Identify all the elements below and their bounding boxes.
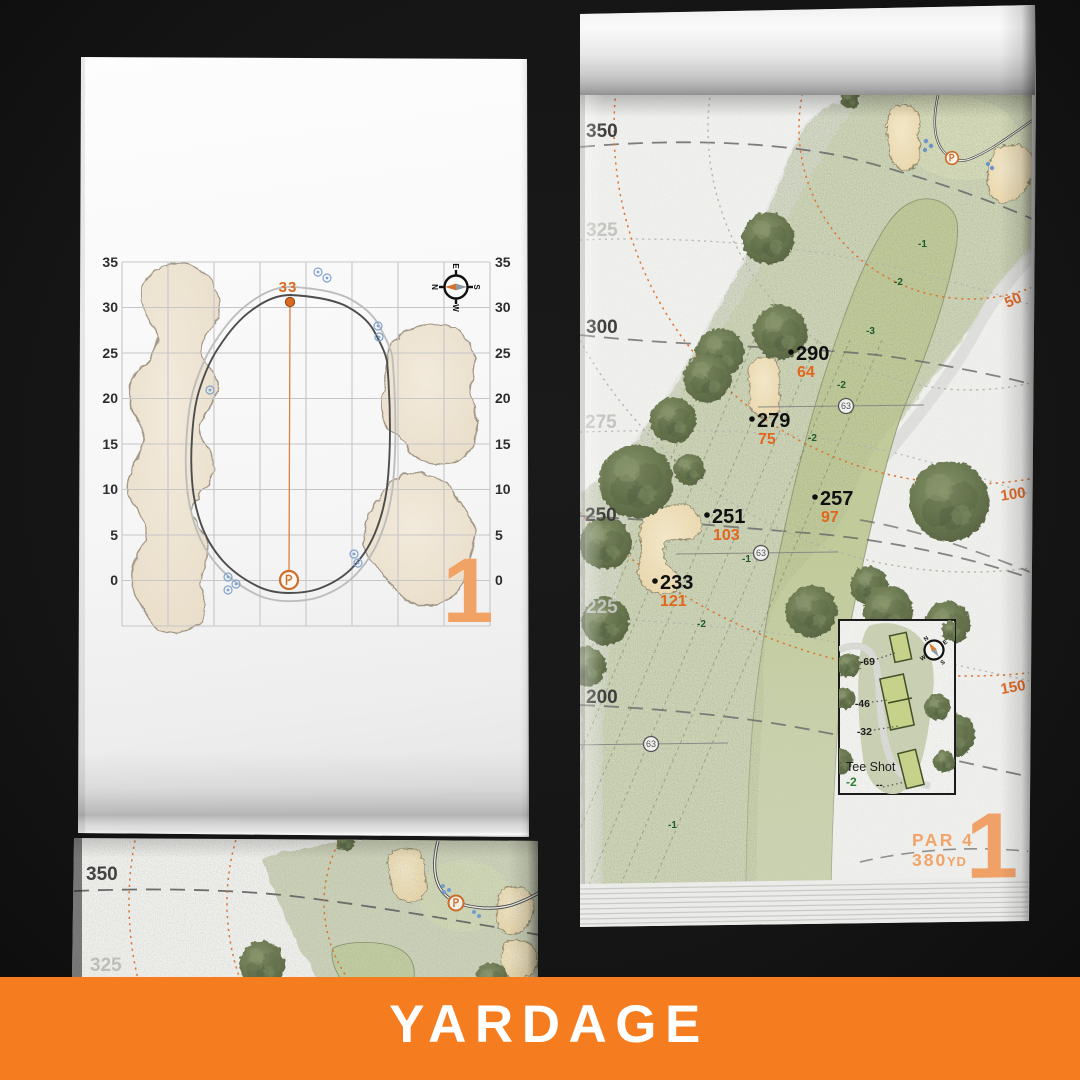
svg-text:-2: -2 bbox=[846, 775, 857, 789]
svg-text:30: 30 bbox=[102, 299, 118, 315]
svg-text:30: 30 bbox=[495, 299, 511, 315]
svg-text:63: 63 bbox=[841, 401, 851, 411]
svg-text:W: W bbox=[451, 304, 460, 312]
svg-text:279: 279 bbox=[757, 410, 790, 432]
svg-text:-32: -32 bbox=[857, 726, 872, 738]
svg-text:10: 10 bbox=[102, 481, 118, 497]
svg-text:290: 290 bbox=[796, 343, 829, 365]
svg-text:75: 75 bbox=[758, 431, 776, 448]
svg-text:-1: -1 bbox=[918, 239, 927, 250]
svg-text:-3: -3 bbox=[866, 326, 875, 337]
svg-text:63: 63 bbox=[646, 739, 656, 749]
svg-text:YARDAGE: YARDAGE bbox=[389, 995, 709, 1054]
svg-text:-1: -1 bbox=[742, 554, 751, 565]
svg-text:10: 10 bbox=[495, 481, 511, 497]
svg-text:380: 380 bbox=[912, 850, 947, 870]
svg-text:5: 5 bbox=[495, 527, 503, 543]
svg-text:33: 33 bbox=[279, 279, 298, 296]
svg-text:-1: -1 bbox=[668, 820, 677, 831]
svg-text:20: 20 bbox=[495, 390, 511, 406]
svg-text:64: 64 bbox=[797, 364, 815, 381]
svg-text:Tee Shot: Tee Shot bbox=[846, 760, 896, 774]
svg-text:20: 20 bbox=[102, 390, 118, 406]
svg-text:S: S bbox=[472, 284, 481, 290]
svg-text:--: -- bbox=[876, 780, 883, 791]
svg-text:-46: -46 bbox=[855, 698, 870, 710]
svg-text:-2: -2 bbox=[697, 619, 706, 630]
svg-text:-2: -2 bbox=[808, 433, 817, 444]
svg-text:25: 25 bbox=[102, 345, 118, 361]
svg-text:15: 15 bbox=[495, 436, 511, 452]
svg-text:0: 0 bbox=[495, 572, 503, 588]
svg-text:121: 121 bbox=[660, 593, 687, 610]
svg-text:-2: -2 bbox=[837, 380, 846, 391]
svg-text:257: 257 bbox=[820, 488, 853, 510]
svg-text:N: N bbox=[430, 284, 439, 290]
svg-text:5: 5 bbox=[110, 527, 118, 543]
svg-text:35: 35 bbox=[102, 254, 118, 270]
svg-text:15: 15 bbox=[102, 436, 118, 452]
svg-text:103: 103 bbox=[713, 527, 740, 544]
svg-text:35: 35 bbox=[495, 254, 511, 270]
svg-text:97: 97 bbox=[821, 509, 839, 526]
svg-text:63: 63 bbox=[756, 548, 766, 558]
svg-text:0: 0 bbox=[110, 572, 118, 588]
svg-text:-69: -69 bbox=[860, 656, 875, 668]
svg-text:233: 233 bbox=[660, 572, 693, 594]
svg-text:-2: -2 bbox=[894, 277, 903, 288]
svg-text:1: 1 bbox=[442, 540, 493, 642]
svg-text:E: E bbox=[451, 263, 460, 269]
svg-text:251: 251 bbox=[712, 506, 745, 528]
svg-text:YD: YD bbox=[947, 854, 967, 869]
svg-text:25: 25 bbox=[495, 345, 511, 361]
